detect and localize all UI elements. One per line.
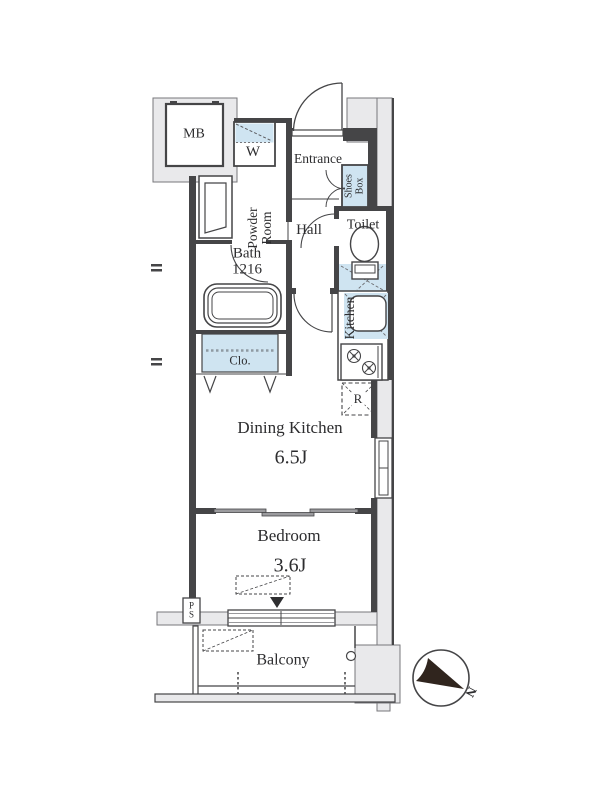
label-bedroom: Bedroom xyxy=(257,527,320,545)
label-toilet: Toilet xyxy=(347,219,379,234)
hall-door xyxy=(294,294,332,332)
label-mb: MB xyxy=(183,128,205,143)
label-kitchen: Kitchen xyxy=(343,297,357,340)
label-entrance: Entrance xyxy=(294,152,342,166)
label-closet: Clo. xyxy=(229,354,250,367)
left-wall-marks xyxy=(151,264,162,366)
floor-plan-drawing xyxy=(0,0,600,800)
balcony-drain xyxy=(347,652,356,661)
dk-window xyxy=(375,438,392,498)
direction-triangle xyxy=(270,597,284,608)
label-shoes-box: Shoes Box xyxy=(345,168,366,204)
entrance-door xyxy=(292,83,343,136)
ac-unit-balcony xyxy=(203,630,253,651)
label-hall: Hall xyxy=(296,223,322,239)
bedroom-window xyxy=(228,610,335,626)
label-dining-kitchen: Dining Kitchen xyxy=(237,419,342,437)
floor-plan: MB W Powder Room Entrance Shoes Box Hall… xyxy=(0,0,600,800)
stove xyxy=(341,344,382,380)
label-refrigerator: R xyxy=(352,392,365,406)
label-bath: Bath 1216 xyxy=(223,246,271,278)
sliding-door-partition xyxy=(214,509,358,516)
ac-unit-bedroom xyxy=(236,576,290,594)
label-balcony: Balcony xyxy=(256,653,309,670)
label-dining-kitchen-size: 6.5J xyxy=(275,448,308,469)
label-pipe-space: PS xyxy=(187,601,195,618)
compass xyxy=(413,650,469,706)
label-washer: W xyxy=(246,145,260,161)
label-bedroom-size: 3.6J xyxy=(274,556,307,577)
washbasin xyxy=(199,176,232,238)
